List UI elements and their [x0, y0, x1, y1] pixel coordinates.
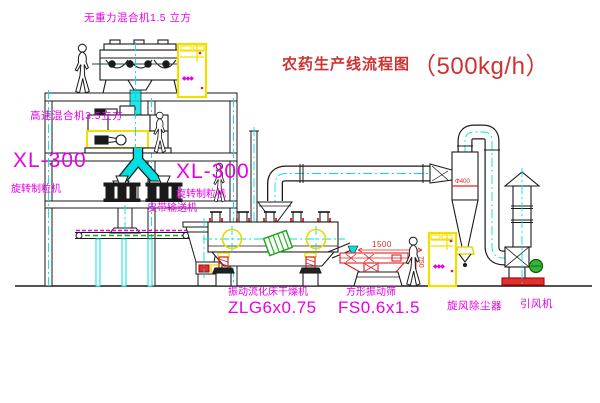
label-belt-conveyor: 皮带输送机 [147, 204, 197, 214]
dryer-nozzles [209, 212, 331, 222]
cabinet-2-indicator: ◆◆◆ [433, 264, 444, 270]
dimension-sifter-length: 1500 [372, 241, 392, 249]
label-high-speed-mixer: 高速混合机3.5立方 [30, 111, 123, 122]
belt-conveyor-drawing [75, 231, 190, 287]
label-granulator-center-name: 旋转制粒机 [176, 190, 226, 200]
dimension-sifter-height: 750 [417, 256, 424, 268]
label-dryer-model: ZLG6x0.75 [228, 299, 317, 316]
dryer-drawing [203, 212, 358, 286]
flow-diagram-page: 农药生产线流程图 （500kg/h） 无重力混合机1.5 立方 高速混合机3.5… [0, 0, 600, 403]
label-gravity-mixer: 无重力混合机1.5 立方 [84, 13, 192, 24]
diagram-title-text: 农药生产线流程图 [282, 53, 410, 74]
label-granulator-center-model: XL-300 [176, 161, 250, 182]
control-cabinet-1 [178, 44, 206, 97]
cabinet-1-indicator: ◆◆◆ [182, 76, 193, 82]
granulator-left [104, 176, 140, 202]
worker-top-floor [75, 44, 89, 93]
exhaust-duct [258, 164, 440, 222]
control-cabinet-2 [429, 233, 456, 286]
gravity-mixer-drawing [92, 40, 190, 93]
label-sifter-model: FS0.6x1.5 [338, 299, 420, 316]
label-granulator-left-name: 旋转制粒机 [11, 185, 61, 195]
diagram-title: 农药生产线流程图 （500kg/h） [282, 46, 550, 81]
diagram-title-capacity: （500kg/h） [412, 46, 550, 81]
label-sifter-name: 方形振动筛 [346, 288, 396, 298]
label-dryer-name: 振动流化床干燥机 [228, 288, 308, 298]
stack-fan-drawing [502, 172, 544, 285]
label-granulator-left-model: XL-300 [13, 150, 87, 171]
label-fan: 引风机 [520, 299, 553, 310]
dimension-cyclone-note: Φ400 [455, 179, 470, 185]
label-cyclone: 旋风除尘器 [447, 301, 502, 312]
